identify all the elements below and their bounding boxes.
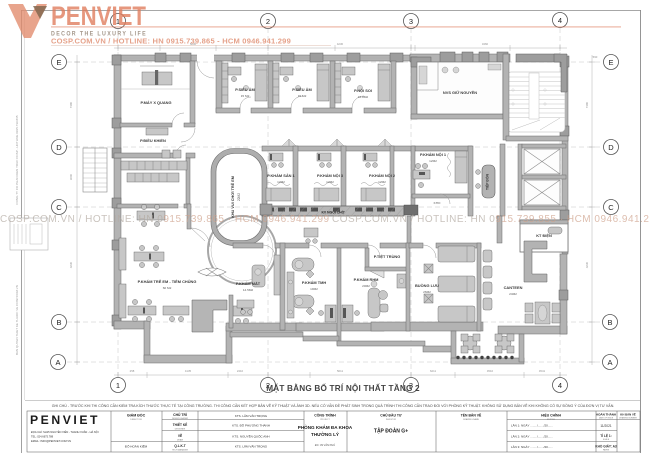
svg-text:GIÁM ĐỐC: GIÁM ĐỐC <box>127 413 146 418</box>
svg-text:ĐỖ HOÀN KIẾM: ĐỖ HOÀN KIẾM <box>125 444 148 449</box>
svg-text:B: B <box>56 318 61 327</box>
svg-text:CANTEEN: CANTEEN <box>504 285 523 290</box>
svg-text:GHI CHÚ - TRƯỚC KHI THI CÔNG C: GHI CHÚ - TRƯỚC KHI THI CÔNG CẦN KIỂM TR… <box>52 403 615 408</box>
svg-text:12M2: 12M2 <box>277 180 285 184</box>
svg-text:D: D <box>608 143 614 152</box>
svg-text:SCALE: SCALE <box>603 438 610 441</box>
svg-text:4230: 4230 <box>69 261 73 268</box>
svg-text:LẦN 2: NGÀY ......../......./2: LẦN 2: NGÀY ......../......./20...... <box>511 435 553 439</box>
svg-text:TIẾP ĐÓN: TIẾP ĐÓN <box>485 173 490 190</box>
svg-text:VẼ: VẼ <box>178 433 182 438</box>
svg-text:7380: 7380 <box>585 101 589 108</box>
svg-text:PAPER: PAPER <box>603 449 610 452</box>
svg-text:THIẾT KẾ: THIẾT KẾ <box>173 422 188 427</box>
svg-text:P.TIỆT TRÙNG: P.TIỆT TRÙNG <box>374 254 401 259</box>
svg-text:3600: 3600 <box>69 173 73 180</box>
svg-text:P.MÁY X QUANG: P.MÁY X QUANG <box>141 100 172 105</box>
svg-text:TEL: 024.6675.788: TEL: 024.6675.788 <box>31 435 54 439</box>
svg-text:4230: 4230 <box>585 261 589 268</box>
svg-text:DECOR THE LUXURY LIFE: DECOR THE LUXURY LIFE <box>51 31 147 38</box>
svg-text:COSP.COM.VN / HOTLINE: HN 0915: COSP.COM.VN / HOTLINE: HN 0915.739.865 -… <box>51 39 291 46</box>
svg-text:P.SIÊU ÂM: P.SIÊU ÂM <box>292 87 311 92</box>
svg-text:BAN QUYEN THIET KE THUOC VE CO: BAN QUYEN THIET KE THUOC VE COSP.COM.VN <box>15 285 19 355</box>
svg-text:12M2: 12M2 <box>326 180 334 184</box>
svg-text:CHỦ ĐẦU TƯ: CHỦ ĐẦU TƯ <box>380 413 402 418</box>
svg-text:C: C <box>608 203 614 212</box>
svg-text:D: D <box>56 143 62 152</box>
svg-text:P.SIÊU ÂM: P.SIÊU ÂM <box>235 87 254 92</box>
svg-text:7380: 7380 <box>69 101 73 108</box>
svg-text:4135: 4135 <box>185 369 192 373</box>
svg-text:6211: 6211 <box>430 369 436 373</box>
svg-text:E: E <box>56 58 61 67</box>
svg-text:PROJECT: PROJECT <box>320 419 330 421</box>
svg-text:3460: 3460 <box>482 42 489 46</box>
svg-text:DIRECTOR: DIRECTOR <box>130 419 142 421</box>
svg-text:DATE OF ISSUE: DATE OF ISSUE <box>599 417 614 420</box>
svg-text:15 M2: 15 M2 <box>298 94 307 98</box>
svg-text:EMAIL: INFO@PENVIET.COM.VN: EMAIL: INFO@PENVIET.COM.VN <box>31 439 71 443</box>
svg-text:P.KHÁM RHM: P.KHÁM RHM <box>354 277 379 282</box>
svg-text:20M2: 20M2 <box>362 284 370 288</box>
svg-text:24M2: 24M2 <box>509 292 517 296</box>
svg-text:MẶT BẰNG BỐ TRÍ NỘI THẤT TẦNG: MẶT BẰNG BỐ TRÍ NỘI THẤT TẦNG 2 <box>266 382 420 393</box>
svg-text:TỈ LỆ 1:: TỈ LỆ 1: <box>600 433 612 438</box>
svg-text:KHU VUI CHƠI TRẺ EM: KHU VUI CHƠI TRẺ EM <box>230 176 235 218</box>
svg-text:TECH MANAGER: TECH MANAGER <box>172 449 189 452</box>
svg-text:19M2: 19M2 <box>310 287 318 291</box>
svg-text:P.KHÁM TRẺ EM - TIÊM CHỦNG: P.KHÁM TRẺ EM - TIÊM CHỦNG <box>138 279 197 284</box>
svg-text:2410: 2410 <box>237 369 244 373</box>
svg-text:INVESTOR: INVESTOR <box>386 419 397 421</box>
svg-text:PHÒNG KHÁM ĐA KHOA: PHÒNG KHÁM ĐA KHOA <box>298 423 353 430</box>
svg-text:KTS. LÂM VĂN TRỌNG: KTS. LÂM VĂN TRỌNG <box>235 444 268 449</box>
svg-text:258: 258 <box>130 369 135 373</box>
svg-text:TÊN BẢN VẼ: TÊN BẢN VẼ <box>461 413 482 418</box>
svg-text:KTS. NGUYỄN QUỐC ANH: KTS. NGUYỄN QUỐC ANH <box>232 434 269 439</box>
svg-text:KTS. ĐỖ PHƯƠNG THẢNH: KTS. ĐỖ PHƯƠNG THẢNH <box>232 423 270 428</box>
svg-text:16.8M2: 16.8M2 <box>358 95 369 99</box>
svg-text:KTS. LÂM VĂN TRỌNG: KTS. LÂM VĂN TRỌNG <box>235 413 268 418</box>
svg-text:PENVIET: PENVIET <box>30 413 100 427</box>
svg-text:P.KHÁM NỘI 1: P.KHÁM NỘI 1 <box>420 152 447 157</box>
svg-text:15 M2: 15 M2 <box>241 94 250 98</box>
svg-text:DESIGNER: DESIGNER <box>175 429 186 431</box>
svg-text:COSP.COM.VN / HOTLINE: HN 0915: COSP.COM.VN / HOTLINE: HN 0915.739.865 ·… <box>0 214 330 225</box>
svg-text:A: A <box>55 358 60 367</box>
svg-text:C: C <box>56 203 62 212</box>
svg-text:BUỒNG LƯU: BUỒNG LƯU <box>415 283 439 288</box>
svg-text:P.NỘI SOI: P.NỘI SOI <box>354 88 372 93</box>
svg-text:60 M2: 60 M2 <box>163 286 172 290</box>
svg-text:4230: 4230 <box>337 42 344 46</box>
svg-text:4541: 4541 <box>539 369 546 373</box>
svg-text:P.KHÁM SẢN 1: P.KHÁM SẢN 1 <box>267 173 295 178</box>
svg-text:P.KHÁM NỘI 2: P.KHÁM NỘI 2 <box>369 173 396 178</box>
svg-text:CHỦ TRÌ: CHỦ TRÌ <box>173 412 187 417</box>
svg-text:KHO: KHO <box>434 201 441 205</box>
svg-text:P.ĐIỀU KHIỂN: P.ĐIỀU KHIỂN <box>140 138 166 143</box>
svg-text:LẦN 3: NGÀY ......../......./2: LẦN 3: NGÀY ......../......./20...... <box>511 445 553 449</box>
svg-text:TẬP ĐOÀN G+: TẬP ĐOÀN G+ <box>374 428 408 435</box>
svg-text:P.KHÁM MẮT: P.KHÁM MẮT <box>236 281 261 286</box>
svg-text:COSP.COM.VN / HOTLINE: HN 0915: COSP.COM.VN / HOTLINE: HN 0915.739.855 ·… <box>332 214 650 225</box>
svg-text:THƯỜNG LÝ: THƯỜNG LÝ <box>311 430 339 437</box>
svg-text:2: 2 <box>266 17 270 26</box>
svg-text:4: 4 <box>558 381 562 390</box>
svg-text:590: 590 <box>593 55 598 59</box>
svg-text:P.KHÁM NỘI 3: P.KHÁM NỘI 3 <box>317 173 344 178</box>
svg-text:KT ĐIỆN: KT ĐIỆN <box>536 233 552 238</box>
svg-text:Q.L.K.T: Q.L.K.T <box>174 444 185 448</box>
svg-text:DRAWING NAME: DRAWING NAME <box>463 418 480 421</box>
svg-text:KH BẢN VẼ: KH BẢN VẼ <box>620 412 636 417</box>
svg-text:HOÀN THÀNH: HOÀN THÀNH <box>596 412 616 417</box>
svg-text:P.KHÁM TMH: P.KHÁM TMH <box>302 280 327 285</box>
svg-text:CÔNG TRÌNH: CÔNG TRÌNH <box>314 413 336 418</box>
svg-text:HIỆU CHỈNH: HIỆU CHỈNH <box>541 413 561 418</box>
svg-text:11/2021: 11/2021 <box>600 424 612 428</box>
svg-text:12M2: 12M2 <box>378 180 386 184</box>
svg-text:B: B <box>607 318 612 327</box>
svg-text:E: E <box>608 58 613 67</box>
svg-text:12M2: 12M2 <box>429 159 437 163</box>
svg-text:DESIGN LEADER: DESIGN LEADER <box>172 417 189 420</box>
svg-text:LẦN 1: NGÀY ......../......./2: LẦN 1: NGÀY ......../......./20...... <box>511 424 553 428</box>
svg-text:EDITING: EDITING <box>547 419 556 421</box>
svg-text:NVS GIỮ NGUYÊN: NVS GIỮ NGUYÊN <box>443 90 477 95</box>
svg-text:A: A <box>607 358 612 367</box>
svg-text:1: 1 <box>116 381 120 390</box>
svg-text:CONG TY CO PHAN KIEN TRUC COSP: CONG TY CO PHAN KIEN TRUC COSP - HOTLINE… <box>15 115 19 204</box>
svg-text:DRAW: DRAW <box>177 439 183 442</box>
svg-text:14.5M2: 14.5M2 <box>243 288 254 292</box>
svg-text:4: 4 <box>558 16 562 25</box>
svg-text:DRAWING NUMBER: DRAWING NUMBER <box>619 417 637 420</box>
svg-text:5011: 5011 <box>337 369 343 373</box>
svg-text:3: 3 <box>409 17 413 26</box>
svg-text:22M2: 22M2 <box>237 193 241 201</box>
svg-text:KHỔ GIẤY: A3: KHỔ GIẤY: A3 <box>595 444 617 449</box>
svg-text:4510: 4510 <box>487 369 494 373</box>
svg-text:26M2: 26M2 <box>423 290 431 294</box>
